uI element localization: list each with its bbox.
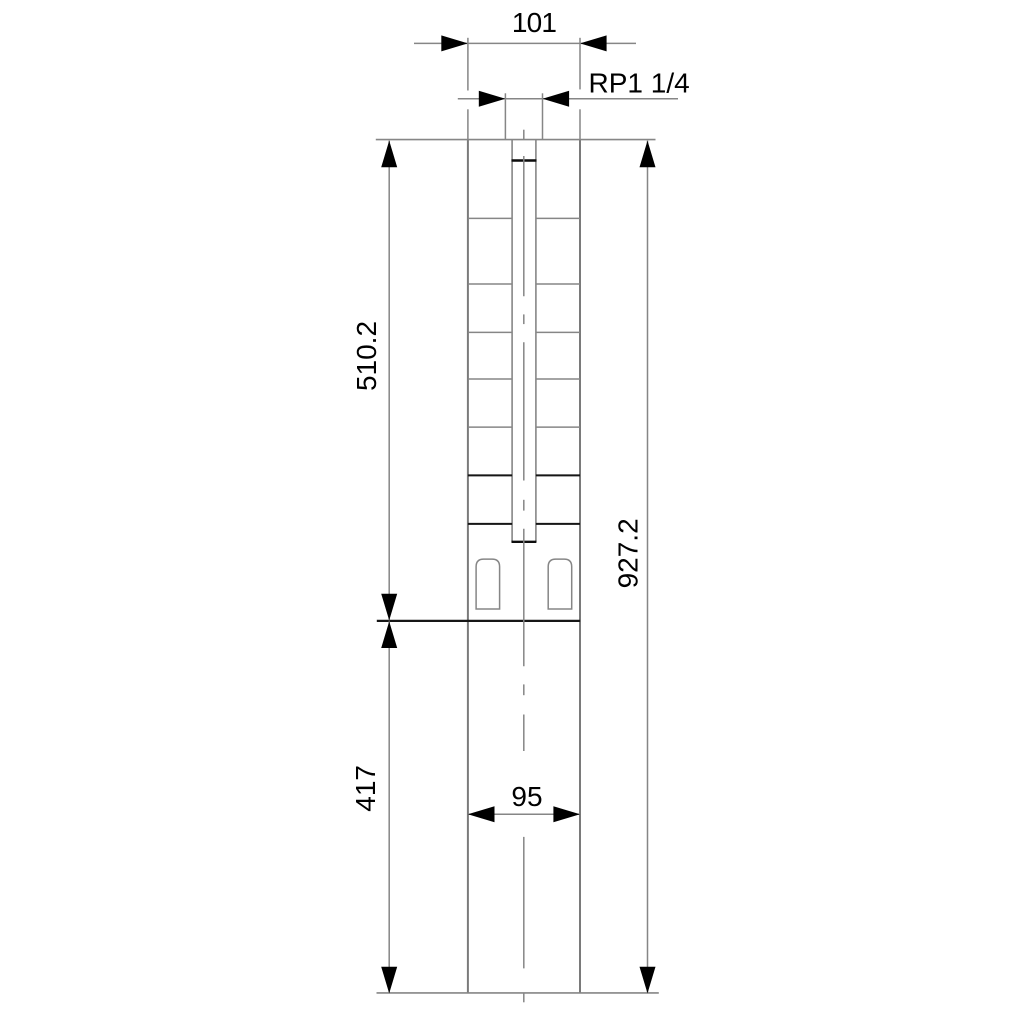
svg-text:101: 101 [512,7,557,38]
svg-text:927.2: 927.2 [613,518,644,588]
svg-text:95: 95 [511,781,542,812]
svg-text:417: 417 [350,765,381,812]
svg-text:RP1 1/4: RP1 1/4 [589,67,690,98]
svg-text:510.2: 510.2 [351,321,382,391]
